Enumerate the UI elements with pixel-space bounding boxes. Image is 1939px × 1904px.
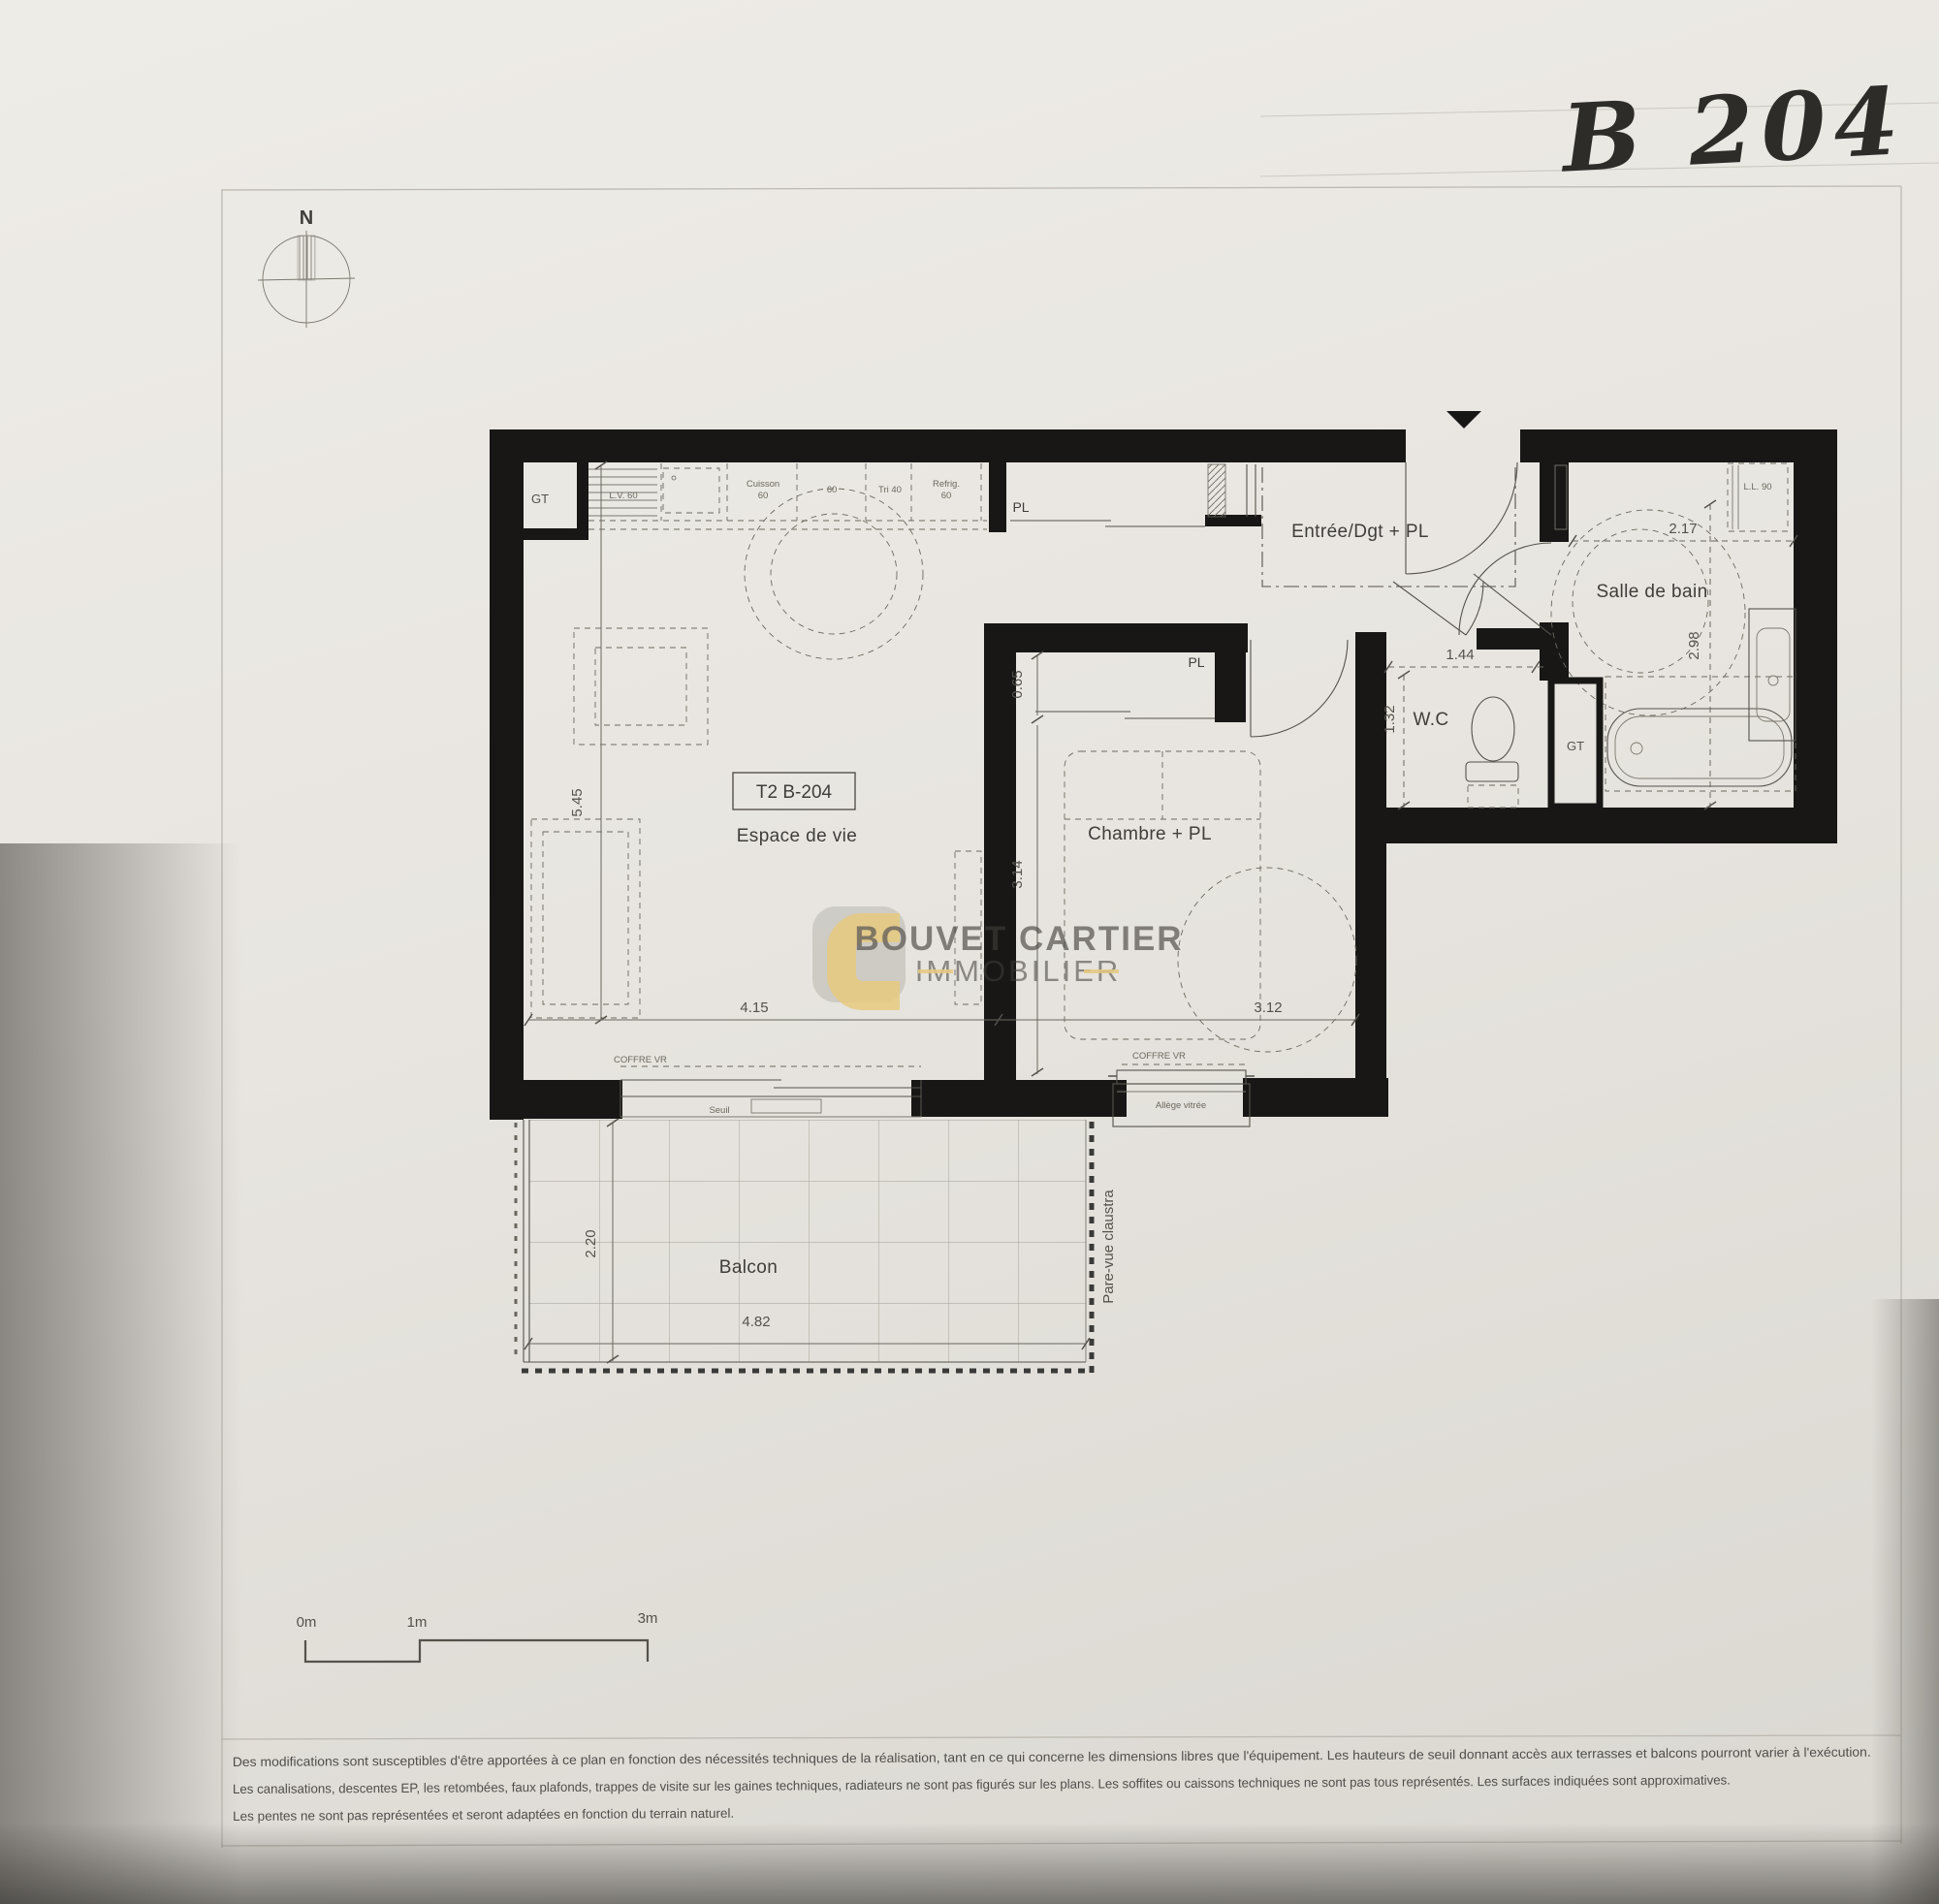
bathtub-outline	[1605, 677, 1796, 791]
sink-icon	[663, 468, 719, 513]
logo-name: BOUVET CARTIER	[854, 920, 1183, 958]
pare-vue-label: Pare-vue claustra	[1100, 1190, 1117, 1304]
unit-tag: T2 B-204	[756, 782, 833, 803]
dim-bath-width: 2.17	[1669, 521, 1697, 537]
living-label: Espace de vie	[737, 826, 858, 846]
dim-bedroom-depth: 3.14	[1009, 860, 1026, 888]
technical-shaft-icon	[1208, 464, 1225, 517]
coffre-vr-left-label: COFFRE VR	[614, 1055, 667, 1065]
washing-machine-label: L.L. 90	[1743, 482, 1771, 492]
dim-living-depth: 5.45	[569, 788, 586, 816]
dim-balcony-width: 4.82	[742, 1314, 770, 1330]
dim-wc-width: 1.44	[1446, 647, 1474, 663]
kitchen: L.V. 60 Cuisson 60 60 Tri 40 Refrig. 60 …	[531, 463, 987, 529]
toilet-icon	[1472, 697, 1514, 761]
floor-plan-photo: N	[0, 0, 1939, 1904]
coffre-vr-right-label: COFFRE VR	[1132, 1051, 1186, 1062]
unit60-label: 60	[827, 485, 838, 495]
disclaimer-line-1: Des modifications sont susceptibles d'êt…	[233, 1745, 1871, 1769]
tri-label: Tri 40	[878, 485, 902, 495]
disclaimer: Des modifications sont susceptibles d'êt…	[233, 1745, 1871, 1824]
hall-closet-label: PL	[1012, 499, 1029, 515]
washing-machine-icon	[1728, 463, 1788, 531]
doors	[1251, 462, 1551, 737]
photo-shadows	[0, 843, 1939, 1904]
dim-bath-depth: 2.98	[1686, 631, 1702, 659]
wc-label: W.C	[1413, 710, 1448, 730]
dim-wc-depth: 1.32	[1382, 705, 1398, 733]
dim-bedroom-pl: 0.65	[1009, 670, 1026, 698]
bathroom-gt-label: GT	[1567, 739, 1584, 753]
bathroom: L.L. 90 GT Salle de bain	[1551, 463, 1796, 807]
fridge-label: Refrig.	[933, 479, 960, 490]
dim-bedroom-width: 3.12	[1254, 1000, 1282, 1016]
allege-label: Allège vitrée	[1156, 1100, 1206, 1111]
bedroom: PL Chambre + PL	[1035, 654, 1356, 1052]
bathtub-icon	[1607, 709, 1792, 786]
hob-label: Cuisson	[747, 479, 779, 490]
living-window: COFFRE VR Seuil	[614, 1055, 921, 1117]
scale-3m: 3m	[638, 1610, 658, 1627]
kitchen-gt-label: GT	[531, 492, 549, 506]
scale-0m: 0m	[297, 1614, 317, 1631]
entrance-arrow-icon	[1446, 411, 1481, 428]
balcony: Balcon Pare-vue claustra	[516, 1120, 1117, 1375]
dim-balcony-depth: 2.20	[583, 1229, 599, 1257]
disclaimer-line-3: Les pentes ne sont pas représentées et s…	[233, 1806, 734, 1824]
disclaimer-line-2: Les canalisations, descentes EP, les ret…	[233, 1773, 1731, 1796]
dishwasher-label: L.V. 60	[609, 491, 637, 501]
walls	[490, 411, 1837, 1120]
kitchen-units	[588, 463, 987, 529]
scale-bar: 0m 1m 3m	[297, 1610, 658, 1662]
bedroom-label: Chambre + PL	[1088, 824, 1212, 844]
dim-living-width: 4.15	[740, 1000, 768, 1016]
handwritten-unit-label: B 204	[1557, 66, 1909, 194]
bedroom-closet-label: PL	[1188, 654, 1204, 670]
entry-zone: Entrée/Dgt + PL	[1262, 467, 1515, 587]
fridge-size-label: 60	[941, 491, 952, 501]
wc-room: W.C	[1413, 697, 1518, 808]
scale-1m: 1m	[407, 1614, 428, 1631]
bathroom-label: Salle de bain	[1596, 582, 1707, 602]
seuil-label: Seuil	[709, 1105, 729, 1116]
north-needle-icon	[298, 236, 315, 280]
balcony-label: Balcon	[719, 1257, 779, 1278]
bedroom-window: COFFRE VR Allège vitrée	[1108, 1051, 1255, 1127]
hob-size-label: 60	[758, 491, 769, 501]
entry-label: Entrée/Dgt + PL	[1291, 522, 1429, 542]
north-compass: N	[258, 207, 355, 328]
north-label: N	[300, 207, 313, 229]
